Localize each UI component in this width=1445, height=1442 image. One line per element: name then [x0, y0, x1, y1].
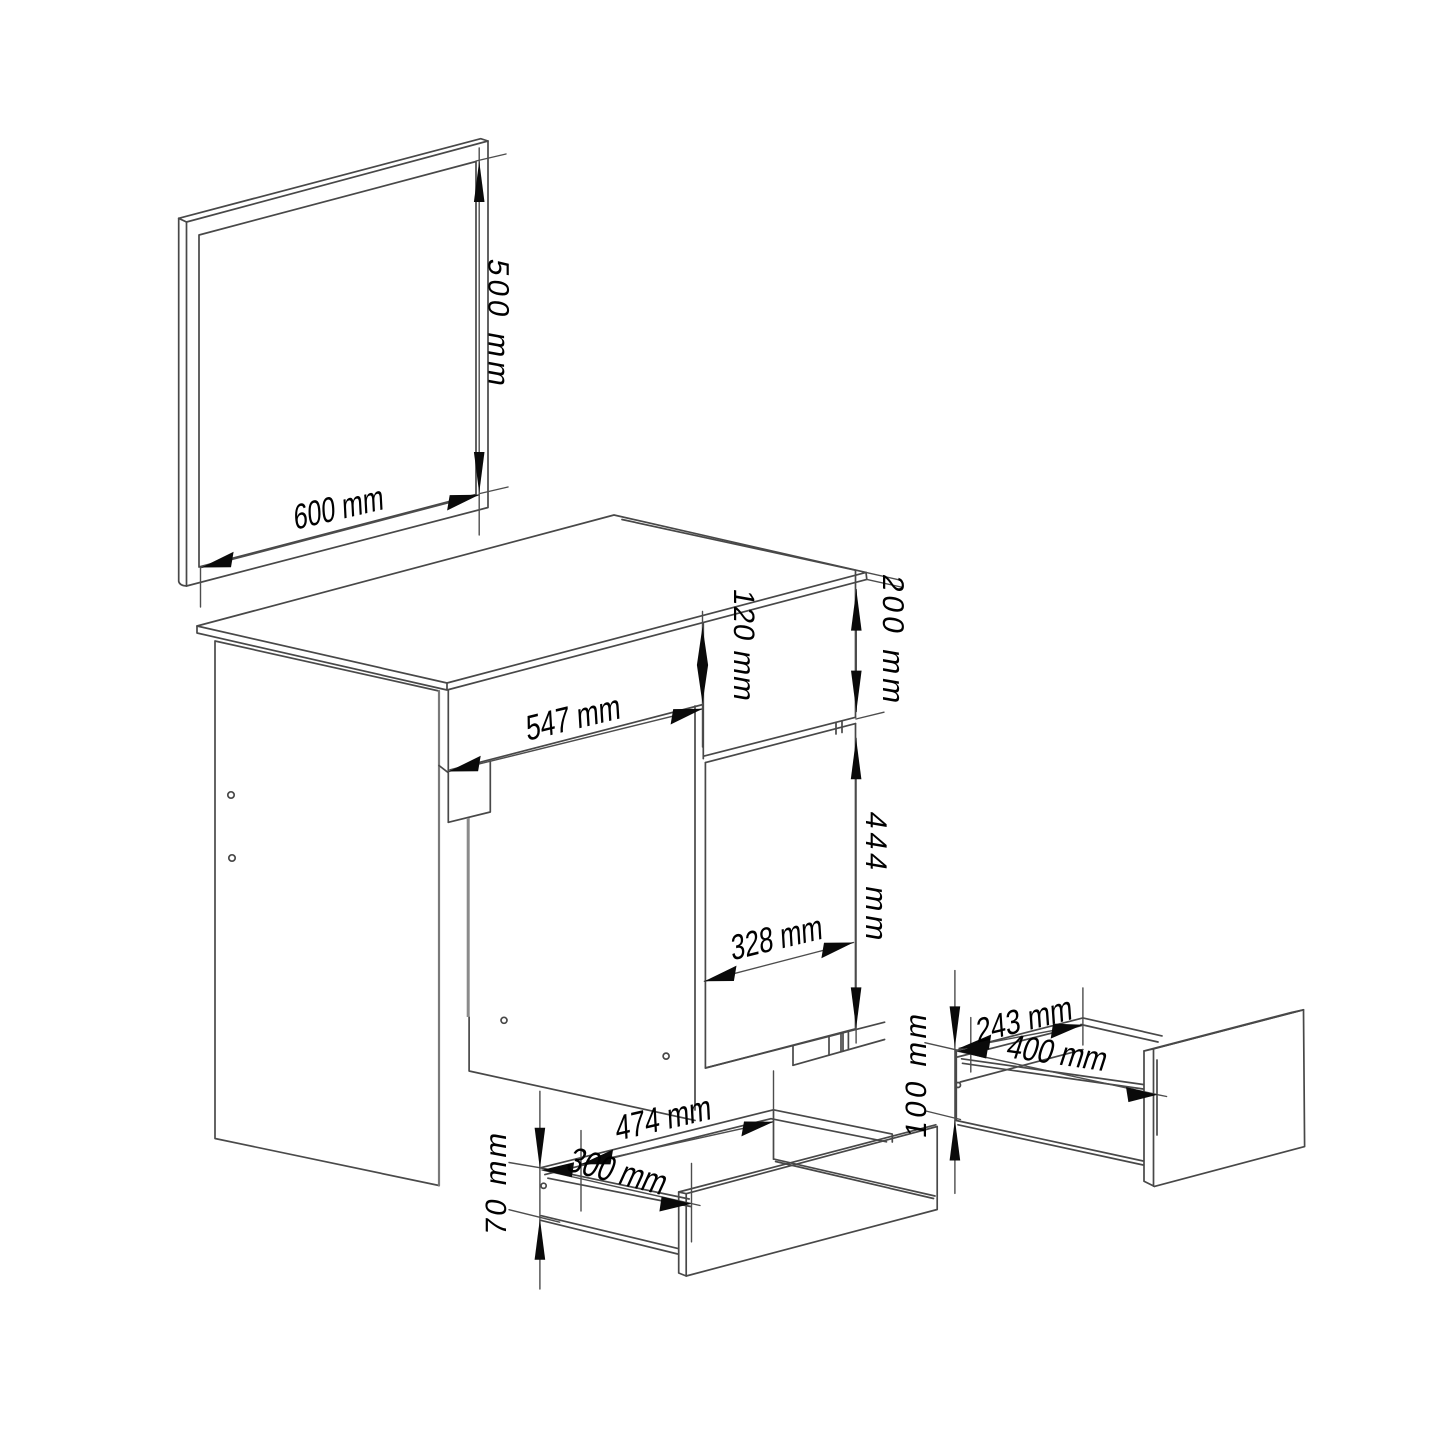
- svg-text:100 mm: 100 mm: [900, 1007, 933, 1140]
- svg-text:200 mm: 200 mm: [876, 572, 909, 710]
- svg-text:120 mm: 120 mm: [727, 587, 760, 705]
- svg-text:70 mm: 70 mm: [480, 1127, 513, 1238]
- svg-text:500 mm: 500 mm: [482, 257, 515, 393]
- svg-text:444 mm: 444 mm: [859, 809, 892, 947]
